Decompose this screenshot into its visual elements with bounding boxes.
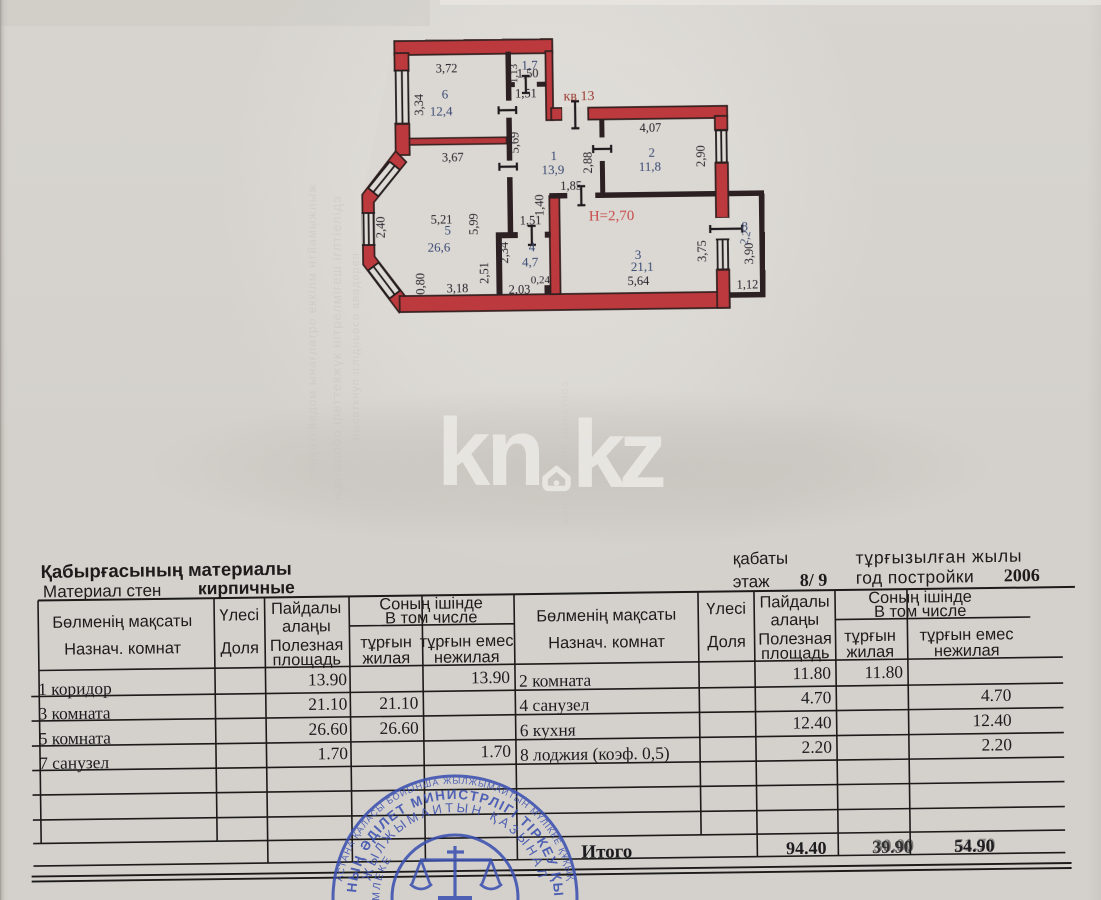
svg-text:13,9: 13,9 bbox=[541, 162, 564, 177]
svg-text:1,7: 1,7 bbox=[521, 57, 538, 72]
svg-text:0,24: 0,24 bbox=[531, 274, 551, 286]
svg-text:5,64: 5,64 bbox=[627, 274, 649, 288]
svg-text:12.40: 12.40 bbox=[972, 710, 1012, 731]
svg-text:1,12: 1,12 bbox=[737, 277, 759, 291]
svg-text:kn: kn bbox=[437, 399, 541, 506]
svg-text:кирпичные: кирпичные bbox=[198, 577, 295, 598]
svg-text:Пайдалы: Пайдалы bbox=[759, 593, 829, 612]
svg-text:11,8: 11,8 bbox=[639, 159, 661, 174]
svg-text:В том числе: В том числе bbox=[874, 602, 967, 621]
svg-text:Итого: Итого bbox=[581, 841, 632, 863]
svg-text:5 комната: 5 комната bbox=[39, 728, 112, 749]
svg-text:21.10: 21.10 bbox=[379, 693, 419, 714]
svg-text:21,1: 21,1 bbox=[631, 259, 654, 274]
svg-text:8/ 9: 8/ 9 bbox=[800, 570, 828, 590]
svg-text:26,6: 26,6 bbox=[427, 239, 450, 254]
svg-text:2006: 2006 bbox=[1004, 565, 1040, 585]
svg-text:12.40: 12.40 bbox=[792, 712, 832, 733]
svg-text:Үлесі: Үлесі bbox=[706, 600, 746, 619]
svg-text:5: 5 bbox=[444, 222, 451, 237]
svg-text:3,34: 3,34 bbox=[412, 94, 426, 116]
svg-text:2,51: 2,51 bbox=[477, 262, 491, 284]
svg-text:год постройки: год постройки bbox=[856, 566, 975, 588]
svg-text:Назнач. комнат: Назнач. комнат bbox=[64, 639, 182, 659]
svg-text:4 санузел: 4 санузел bbox=[519, 694, 590, 715]
svg-text:алаңы: алаңы bbox=[770, 611, 819, 630]
svg-text:kz: kz bbox=[572, 401, 664, 508]
svg-text:11.80: 11.80 bbox=[792, 663, 831, 684]
svg-text:1,51: 1,51 bbox=[520, 213, 542, 227]
svg-text:тұрғызылған жылы: тұрғызылған жылы bbox=[855, 546, 1022, 568]
svg-text:1.70: 1.70 bbox=[480, 741, 511, 761]
svg-text:нежилая: нежилая bbox=[434, 648, 500, 667]
svg-text:1 коридор: 1 коридор bbox=[38, 678, 112, 699]
svg-text:4.70: 4.70 bbox=[981, 685, 1012, 705]
svg-text:2,34: 2,34 bbox=[497, 242, 511, 264]
svg-text:51.70: 51.70 bbox=[955, 834, 996, 855]
svg-text:21.10: 21.10 bbox=[308, 693, 348, 714]
svg-text:30.00: 30.00 bbox=[873, 835, 914, 856]
svg-text:нежилая: нежилая bbox=[934, 641, 1000, 660]
svg-text:6: 6 bbox=[442, 86, 449, 101]
svg-text:4: 4 bbox=[529, 239, 536, 254]
svg-text:площадь: площадь bbox=[761, 644, 830, 663]
svg-text:2: 2 bbox=[648, 145, 655, 160]
svg-text:94.40: 94.40 bbox=[786, 838, 827, 859]
svg-text:13.90: 13.90 bbox=[308, 669, 348, 690]
svg-text:нысаткнуп іглідньосо авадереп: нысаткнуп іглідньосо авадереп bbox=[350, 252, 362, 440]
svg-text:2.20: 2.20 bbox=[801, 737, 832, 757]
svg-text:Бөлменің мақсаты: Бөлменің мақсаты bbox=[536, 606, 676, 626]
svg-text:26.60: 26.60 bbox=[308, 718, 348, 739]
svg-text:алаңы: алаңы bbox=[282, 617, 331, 636]
svg-text:3,18: 3,18 bbox=[447, 281, 469, 295]
svg-text:12,4: 12,4 bbox=[430, 103, 453, 118]
svg-text:кв 13: кв 13 bbox=[563, 89, 594, 104]
svg-text:1,51: 1,51 bbox=[515, 86, 537, 100]
svg-text:Доля: Доля bbox=[707, 633, 746, 652]
svg-text:этаж: этаж bbox=[733, 572, 771, 591]
svg-text:H=2,70: H=2,70 bbox=[589, 208, 635, 225]
svg-text:4.70: 4.70 bbox=[801, 687, 832, 707]
svg-text:4,7: 4,7 bbox=[522, 254, 539, 269]
svg-text:1: 1 bbox=[550, 148, 557, 163]
svg-text:3 комната: 3 комната bbox=[38, 703, 111, 724]
svg-text:2.20: 2.20 bbox=[981, 734, 1012, 754]
svg-text:7 санузел: 7 санузел bbox=[39, 752, 110, 773]
svg-text:6 кухня: 6 кухня bbox=[520, 719, 576, 740]
svg-text:26.60: 26.60 bbox=[379, 718, 419, 739]
svg-text:13.90: 13.90 bbox=[471, 667, 511, 688]
svg-text:жилая: жилая bbox=[362, 649, 410, 668]
svg-text:2 комната: 2 комната bbox=[519, 670, 592, 691]
svg-text:мантроп ебос мынатроа: мантроп ебос мынатроа bbox=[559, 380, 571, 525]
svg-text:8 лоджия (коэф. 0,5): 8 лоджия (коэф. 0,5) bbox=[520, 743, 670, 765]
svg-text:3,75: 3,75 bbox=[695, 240, 709, 262]
svg-text:2,88: 2,88 bbox=[581, 152, 595, 174]
svg-text:4,07: 4,07 bbox=[639, 121, 661, 135]
svg-text:2,90: 2,90 bbox=[694, 145, 708, 167]
svg-text:В том числе: В том числе bbox=[385, 608, 478, 627]
svg-text:хиневтсйедом ынағлатро еккілм: хиневтсйедом ынағлатро еккілм нтйамыжлыж bbox=[305, 184, 319, 480]
svg-text:3,72: 3,72 bbox=[436, 61, 458, 75]
svg-text:Үлесі: Үлесі bbox=[219, 606, 259, 625]
svg-text:1,85: 1,85 bbox=[560, 179, 582, 193]
svg-text:площадь: площадь bbox=[272, 651, 341, 670]
svg-text:қабаты: қабаты bbox=[733, 549, 789, 569]
svg-text:2,40: 2,40 bbox=[374, 216, 388, 238]
svg-text:Бөлменің мақсаты: Бөлменің мақсаты bbox=[52, 612, 192, 632]
svg-text:2,03: 2,03 bbox=[509, 282, 531, 296]
svg-text:1.70: 1.70 bbox=[317, 743, 348, 763]
svg-text:0,80: 0,80 bbox=[413, 273, 427, 295]
svg-text:11.80: 11.80 bbox=[864, 662, 903, 683]
svg-text:5,99: 5,99 bbox=[466, 213, 480, 235]
svg-text:5,69: 5,69 bbox=[507, 132, 521, 154]
svg-text:Пайдалы: Пайдалы bbox=[271, 599, 341, 618]
svg-text:ыдныробо іреттекжүк нітрелміге: ыдныробо іреттекжүк нітрелмігеш іглтіелі… bbox=[329, 195, 344, 500]
svg-text:жилая: жилая bbox=[846, 643, 894, 662]
svg-text:Назнач. комнат: Назнач. комнат bbox=[548, 633, 666, 653]
svg-text:Доля: Доля bbox=[220, 639, 259, 658]
svg-text:3,67: 3,67 bbox=[442, 150, 464, 164]
